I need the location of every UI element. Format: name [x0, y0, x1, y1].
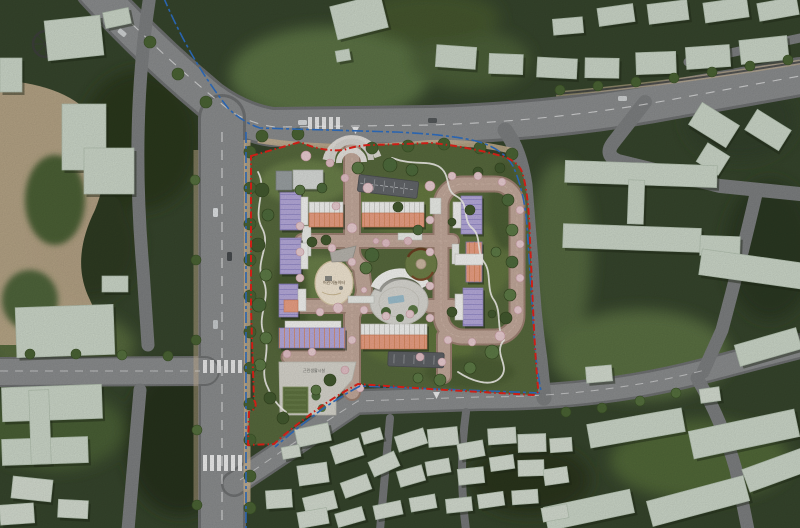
aerial-site-plan: 근린생활시설 어린이놀이터	[0, 0, 800, 528]
site-plan-canvas: 근린생활시설 어린이놀이터	[0, 0, 800, 528]
photo-grain	[0, 0, 800, 528]
